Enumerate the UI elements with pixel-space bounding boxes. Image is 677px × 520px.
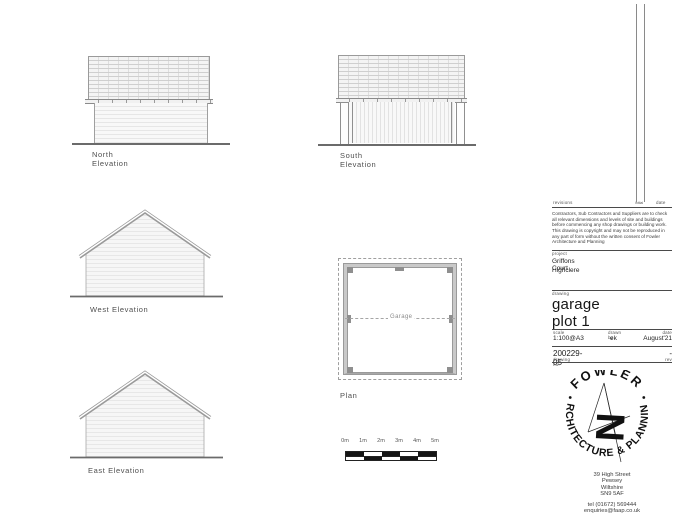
scale-bar-bar — [345, 451, 437, 461]
north-roof — [88, 56, 210, 100]
scale-bar-tick-5: 5m — [431, 438, 439, 444]
south-roof — [338, 55, 465, 99]
scale-bar-tick-2: 2m — [377, 438, 385, 444]
email: enquiries@faap.co.uk — [552, 508, 672, 514]
scale-bar: 0m 1m 2m 3m 4m 5m — [345, 438, 445, 464]
scale-bar-tick-4: 4m — [413, 438, 421, 444]
south-frame-left — [352, 102, 353, 143]
scale-bar-tick-0: 0m — [341, 438, 349, 444]
scale-value: 1:100@A3 — [553, 335, 584, 342]
north-elevation-label: North Elevation — [92, 150, 128, 168]
project-label: project — [552, 251, 567, 256]
logo-n-glyph: N — [587, 412, 632, 443]
scale-bar-tick-1: 1m — [359, 438, 367, 444]
plan-post-mid-right — [449, 315, 453, 323]
plan-post-corner-tl — [347, 267, 353, 273]
east-elevation-label: East Elevation — [88, 466, 144, 475]
logo-dot-right — [642, 396, 645, 399]
title-block-rule-1 — [552, 207, 672, 208]
south-post-right — [456, 102, 465, 145]
date-value: August'21 — [632, 335, 672, 342]
logo-name-text: FOWLER — [567, 370, 646, 392]
west-elevation-drawing: West Elevation — [66, 204, 226, 304]
north-ground-line — [72, 143, 230, 145]
plan-post-mid-left — [347, 315, 351, 323]
plan-post-corner-br — [447, 367, 453, 373]
scale-bar-tick-3: 3m — [395, 438, 403, 444]
title-block-rule-2 — [552, 250, 672, 251]
revisions-initial-label: initial — [635, 201, 643, 205]
address-block: 39 High Street Pewsey Wiltshire SN9 5AF … — [552, 472, 672, 515]
south-opening — [349, 102, 455, 143]
plan-post-corner-bl — [347, 367, 353, 373]
east-gable-svg — [66, 365, 226, 465]
fowler-logo: N FOWLER ARCHITECTURE & PLANNING — [557, 370, 657, 470]
plan-post-corner-tr — [447, 267, 453, 273]
plan-post-top-centre — [395, 267, 404, 271]
revisions-column — [636, 4, 645, 202]
title-block-rule-6 — [552, 362, 672, 363]
disclaimer-2: This drawing is copyright and may not be… — [552, 228, 673, 245]
plan-room-label: Garage — [388, 314, 414, 320]
south-elevation-label: South Elevation — [340, 151, 376, 169]
svg-text:FOWLER: FOWLER — [567, 370, 646, 392]
north-wall — [94, 103, 208, 143]
revisions-date-label: date — [656, 200, 666, 205]
plan-label: Plan — [340, 391, 357, 400]
revisions-label: revisions — [553, 200, 573, 205]
drawn-by-value: ek — [610, 335, 617, 342]
west-elevation-label: West Elevation — [90, 305, 148, 314]
east-elevation-drawing: East Elevation — [66, 365, 226, 465]
west-gable-svg — [66, 204, 226, 304]
south-ground-line — [318, 144, 476, 146]
south-frame-right — [451, 102, 452, 143]
drawing-title: garage plot 1 — [552, 296, 600, 330]
title-block-rule-5 — [552, 346, 672, 347]
drawing-sheet: { "elevations": { "north": { "label": "N… — [0, 0, 677, 520]
south-post-left — [340, 102, 349, 145]
disclaimer-1: Contractors, Sub Contractors and Supplie… — [552, 211, 673, 228]
logo-dot-left — [569, 396, 572, 399]
project-name-line2: Highclere — [552, 267, 579, 274]
title-block-rule-3 — [552, 290, 672, 291]
